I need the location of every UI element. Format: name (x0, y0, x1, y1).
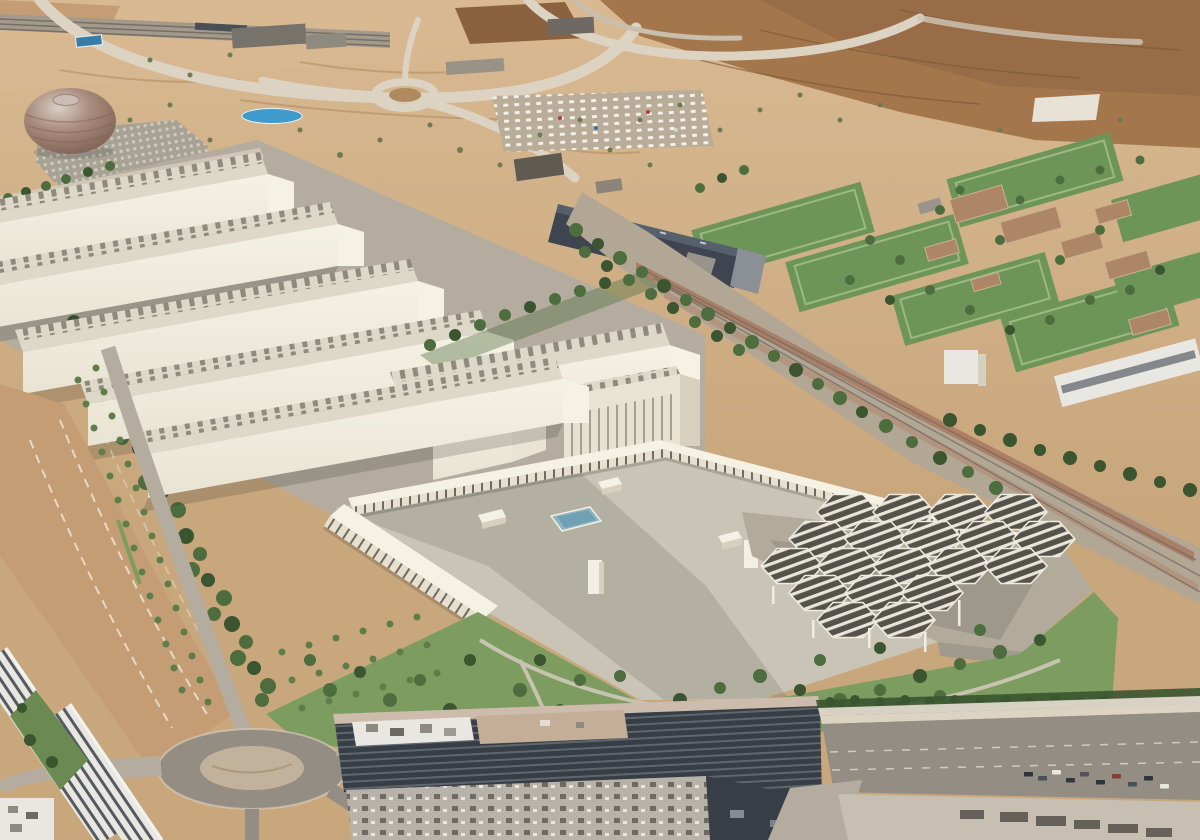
main-road-south[interactable] (822, 712, 1200, 800)
boulevard-south (768, 688, 1200, 840)
sports-court (76, 35, 103, 48)
aerial-scene: Aerial 3D rendering of a film-studio cam… (0, 0, 1200, 840)
gravel-parking-lot (492, 90, 714, 152)
pond (242, 109, 302, 124)
small-white-building (944, 350, 986, 386)
white-storage-patch (1032, 94, 1100, 122)
dome-oculus (53, 95, 79, 106)
corner-building (0, 798, 54, 840)
south-roundabout (158, 729, 346, 809)
aerial-render-image: Aerial 3D rendering of a film-studio cam… (0, 0, 1200, 840)
